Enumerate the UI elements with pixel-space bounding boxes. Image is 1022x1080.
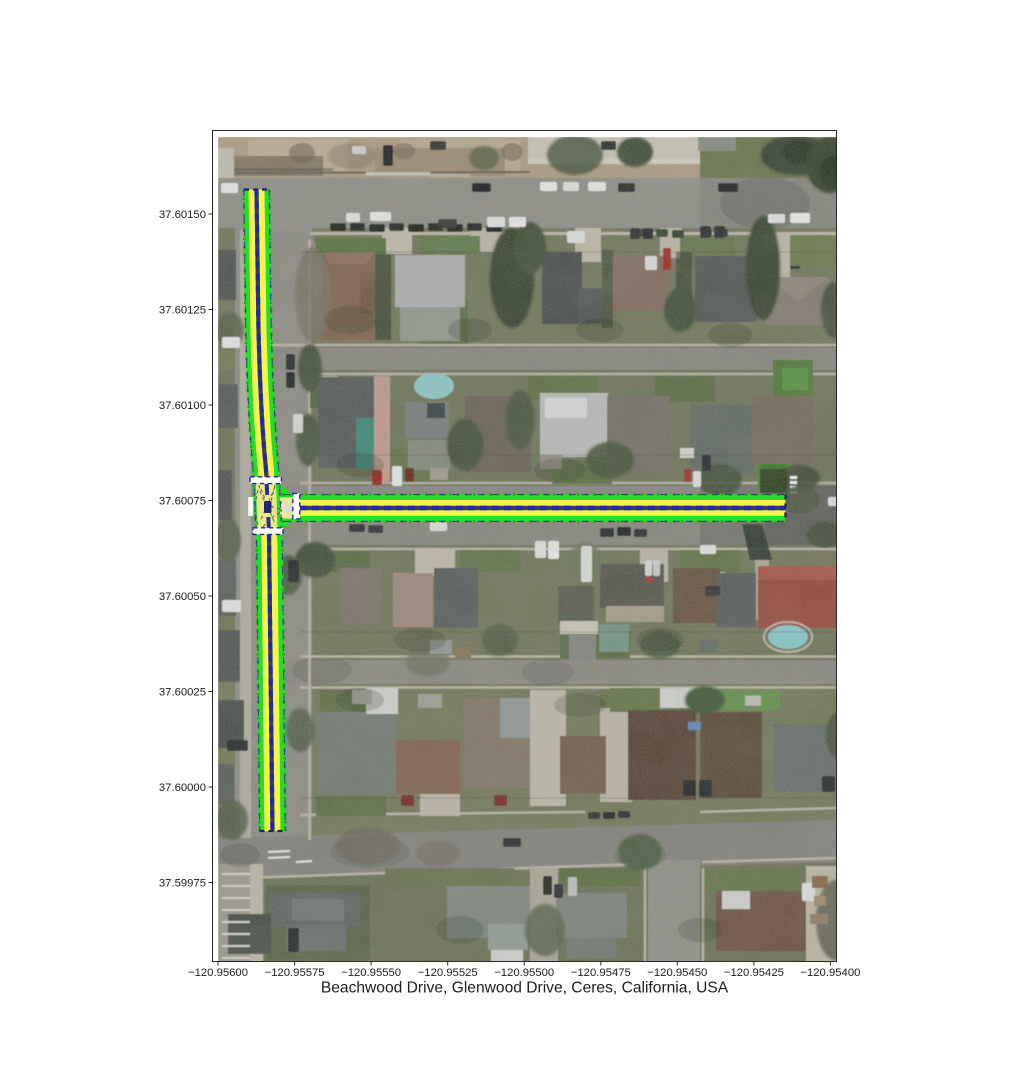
svg-text:−120.95450: −120.95450 bbox=[647, 967, 707, 979]
svg-text:−120.95500: −120.95500 bbox=[494, 967, 554, 979]
svg-text:37.60000: 37.60000 bbox=[159, 782, 206, 794]
svg-text:−120.95425: −120.95425 bbox=[724, 967, 784, 979]
svg-text:37.60150: 37.60150 bbox=[159, 209, 206, 221]
svg-text:37.60075: 37.60075 bbox=[159, 496, 206, 508]
svg-text:−120.95475: −120.95475 bbox=[571, 967, 631, 979]
svg-text:37.60050: 37.60050 bbox=[159, 591, 206, 603]
svg-text:37.59975: 37.59975 bbox=[159, 878, 206, 890]
svg-text:37.60025: 37.60025 bbox=[159, 687, 206, 699]
svg-text:Beachwood Drive, Glenwood Driv: Beachwood Drive, Glenwood Drive, Ceres, … bbox=[321, 980, 729, 997]
svg-text:−120.95400: −120.95400 bbox=[800, 967, 860, 979]
svg-text:37.60125: 37.60125 bbox=[159, 305, 206, 317]
svg-text:−120.95525: −120.95525 bbox=[418, 967, 478, 979]
svg-text:−120.95600: −120.95600 bbox=[188, 967, 248, 979]
svg-text:−120.95550: −120.95550 bbox=[341, 967, 401, 979]
svg-text:37.60100: 37.60100 bbox=[159, 400, 206, 412]
svg-text:−120.95575: −120.95575 bbox=[265, 967, 325, 979]
